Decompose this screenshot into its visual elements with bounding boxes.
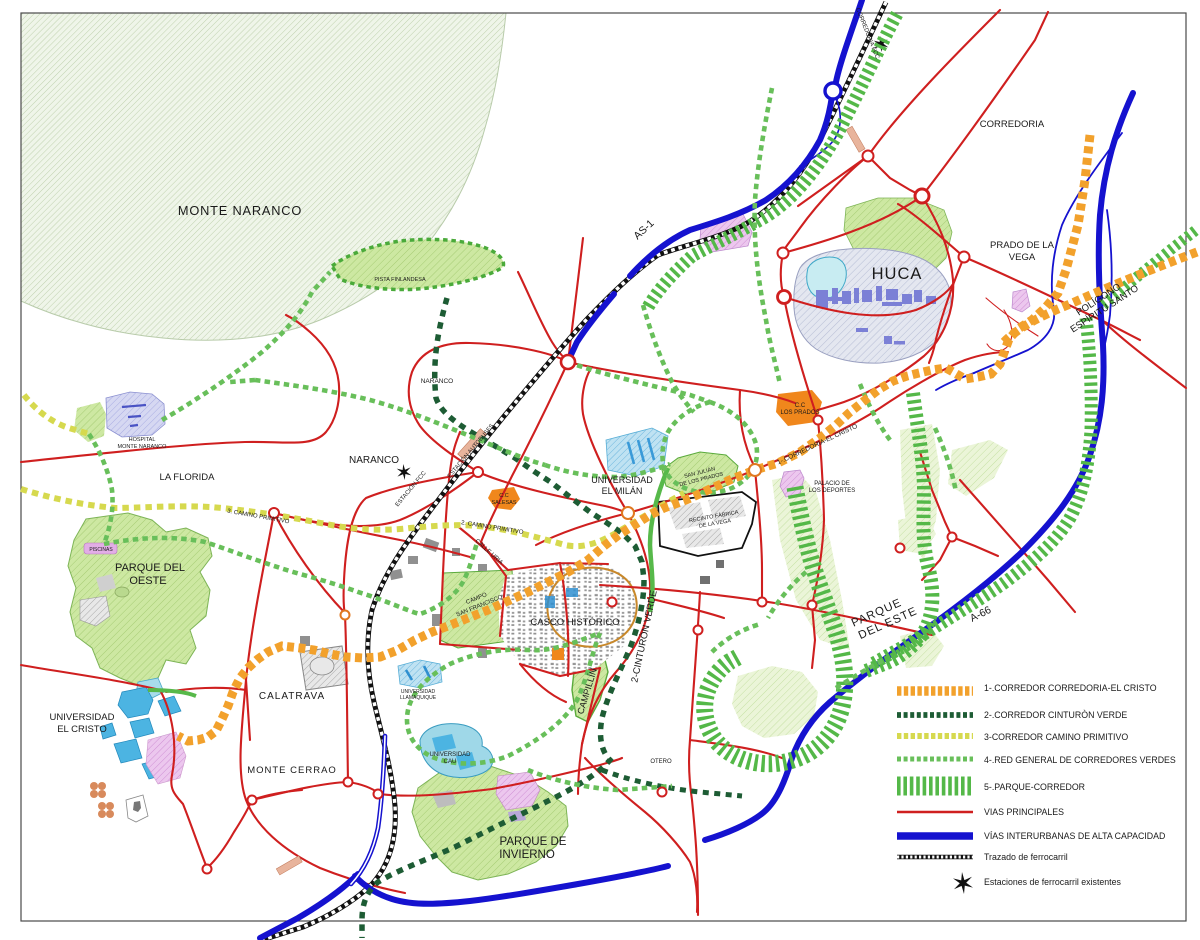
svg-text:CAU: CAU <box>444 759 457 765</box>
svg-text:CASCO HISTÓRICO: CASCO HISTÓRICO <box>530 617 619 628</box>
svg-text:LA FLORIDA: LA FLORIDA <box>160 472 216 483</box>
svg-text:UNIVERSIDAD: UNIVERSIDAD <box>429 752 471 758</box>
svg-text:MONTE CERRAO: MONTE CERRAO <box>247 765 337 776</box>
svg-text:CALATRAVA: CALATRAVA <box>259 691 325 702</box>
svg-text:INVIERNO: INVIERNO <box>499 849 555 861</box>
svg-text:EL MILÁN: EL MILÁN <box>602 486 643 496</box>
svg-text:Estaciones de ferrocarril exis: Estaciones de ferrocarril existentes <box>984 877 1122 887</box>
svg-text:PARQUE DEL: PARQUE DEL <box>115 562 185 574</box>
svg-text:SALESAS: SALESAS <box>491 500 516 506</box>
svg-text:VEGA: VEGA <box>1009 252 1036 263</box>
svg-text:NARANCO: NARANCO <box>421 378 454 385</box>
svg-text:PALACIO DE: PALACIO DE <box>814 481 850 487</box>
svg-text:1-.CORREDOR CORREDORIA-EL CRIS: 1-.CORREDOR CORREDORIA-EL CRISTO <box>984 683 1157 693</box>
svg-text:C.C: C.C <box>499 493 509 499</box>
svg-text:LLAMAQUIQUE: LLAMAQUIQUE <box>400 695 437 701</box>
svg-text:Trazado de ferrocarril: Trazado de ferrocarril <box>984 852 1068 862</box>
svg-text:CORREDORIA: CORREDORIA <box>980 119 1045 130</box>
svg-text:MONTE NARANCO: MONTE NARANCO <box>118 444 168 450</box>
svg-text:PISCINAS: PISCINAS <box>89 547 113 553</box>
svg-text:4-.RED GENERAL DE CORREDORES V: 4-.RED GENERAL DE CORREDORES VERDES <box>984 755 1176 765</box>
svg-text:UNIVERSIDAD: UNIVERSIDAD <box>50 712 115 723</box>
svg-text:UNIVERSIDAD: UNIVERSIDAD <box>591 475 653 485</box>
svg-text:OESTE: OESTE <box>129 575 166 587</box>
svg-text:LOS PRADOS: LOS PRADOS <box>780 410 819 416</box>
svg-text:VIAS PRINCIPALES: VIAS PRINCIPALES <box>984 807 1064 817</box>
svg-text:OTERO: OTERO <box>650 759 672 765</box>
svg-text:2-.CORREDOR CINTURÒN VERDE: 2-.CORREDOR CINTURÒN VERDE <box>984 710 1127 720</box>
svg-text:3-CORREDOR CAMINO PRIMITIVO: 3-CORREDOR CAMINO PRIMITIVO <box>984 732 1128 742</box>
svg-text:PISTA FINLANDESA: PISTA FINLANDESA <box>374 277 426 283</box>
svg-text:EL CRISTO: EL CRISTO <box>57 724 107 735</box>
svg-text:5-.PARQUE-CORREDOR: 5-.PARQUE-CORREDOR <box>984 782 1085 792</box>
svg-text:VÍAS INTERURBANAS DE ALTA CAPA: VÍAS INTERURBANAS DE ALTA CAPACIDAD <box>984 831 1165 841</box>
svg-text:HOSPITAL: HOSPITAL <box>129 437 156 443</box>
svg-text:NARANCO: NARANCO <box>349 455 399 466</box>
svg-text:MONTE NARANCO: MONTE NARANCO <box>178 203 302 218</box>
svg-text:LOS DEPORTES: LOS DEPORTES <box>809 488 856 494</box>
svg-text:PRADO DE LA: PRADO DE LA <box>990 240 1055 251</box>
svg-text:C.C: C.C <box>795 403 806 409</box>
svg-text:HUCA: HUCA <box>872 265 923 283</box>
svg-text:PARQUE DE: PARQUE DE <box>500 836 567 848</box>
